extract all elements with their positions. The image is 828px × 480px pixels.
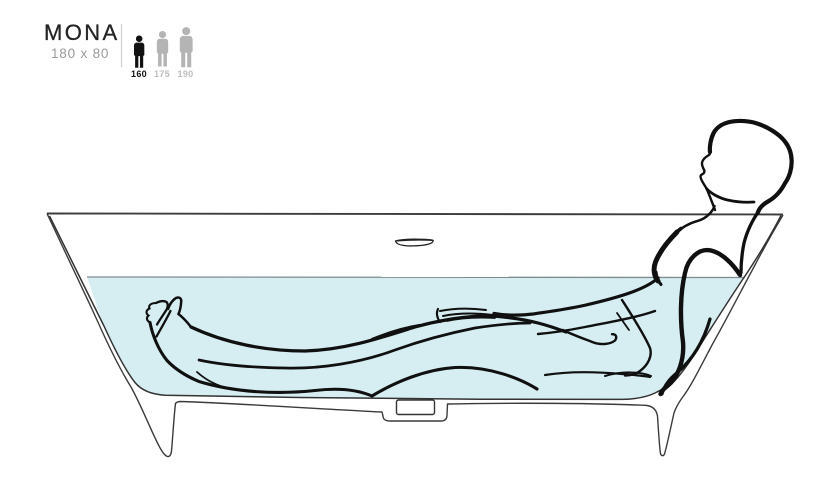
svg-text:190: 190 — [178, 69, 194, 79]
svg-text:160: 160 — [131, 69, 147, 79]
svg-text:175: 175 — [154, 69, 170, 79]
